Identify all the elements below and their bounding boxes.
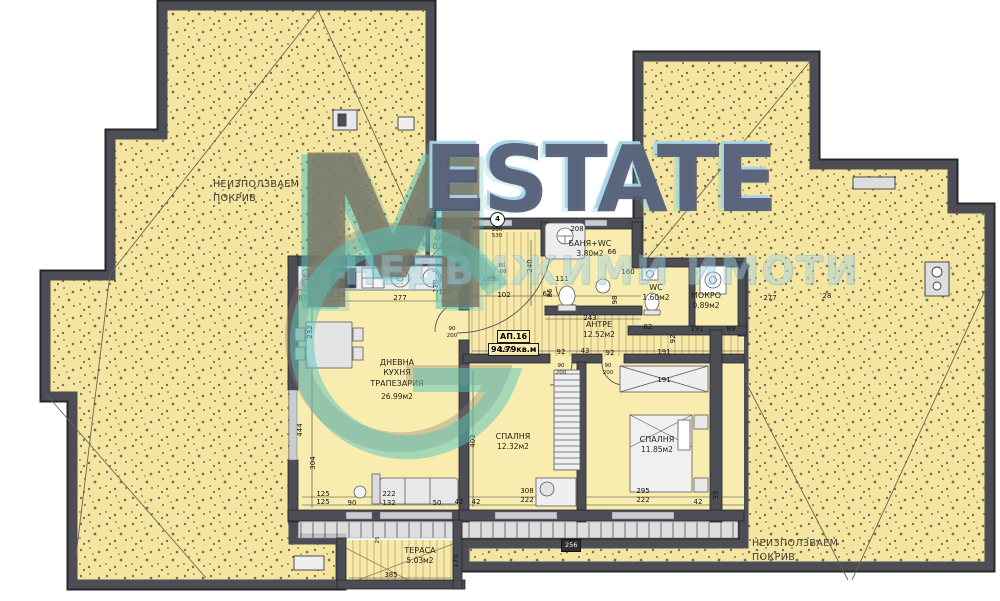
room-label-terrace: ТЕРАСА5.03м2 [404, 546, 435, 566]
room-label-hall: АНТРЕ12.52м2 [583, 320, 615, 340]
apartment-id-badge: АП.16 [497, 330, 530, 343]
apartment-area-badge: 94.79кв.м [488, 343, 539, 356]
room-label-roof-left: НЕИЗПОЛЗВАЕМПОКРИВ [213, 178, 299, 207]
room-label-bedroom1: СПАЛНЯ12.32м2 [496, 432, 531, 452]
window-ledge [298, 522, 738, 538]
floor-plan-page: НЕИЗПОЛЗВАЕМПОКРИВ НЕИЗПОЛЗВАЕМПОКРИВ СК… [0, 0, 1000, 601]
room-label-bedroom2: СПАЛНЯ11.85м2 [640, 435, 675, 455]
room-label-wc: WC1.60м2 [642, 283, 669, 303]
level-marker: 256 [561, 539, 581, 552]
laundry-fixtures [700, 266, 726, 294]
room-label-roof-right: НЕИЗПОЛЗВАЕМПОКРИВ [752, 537, 838, 566]
room-label-laundry: МОКРО0.89м2 [691, 291, 721, 311]
room-label-bath: БАНЯ+WC3.80м2 [569, 239, 612, 259]
kitchen-counter [298, 266, 462, 290]
room-label-living: ДНЕВНАКУХНЯ ТРАПЕЗАРИЯ26.99м2 [370, 358, 423, 402]
floor-plan-canvas [0, 0, 1000, 601]
room-label-storage: СКЛАД0.97м2 [432, 234, 459, 252]
entry-marker: 4 [490, 212, 505, 227]
